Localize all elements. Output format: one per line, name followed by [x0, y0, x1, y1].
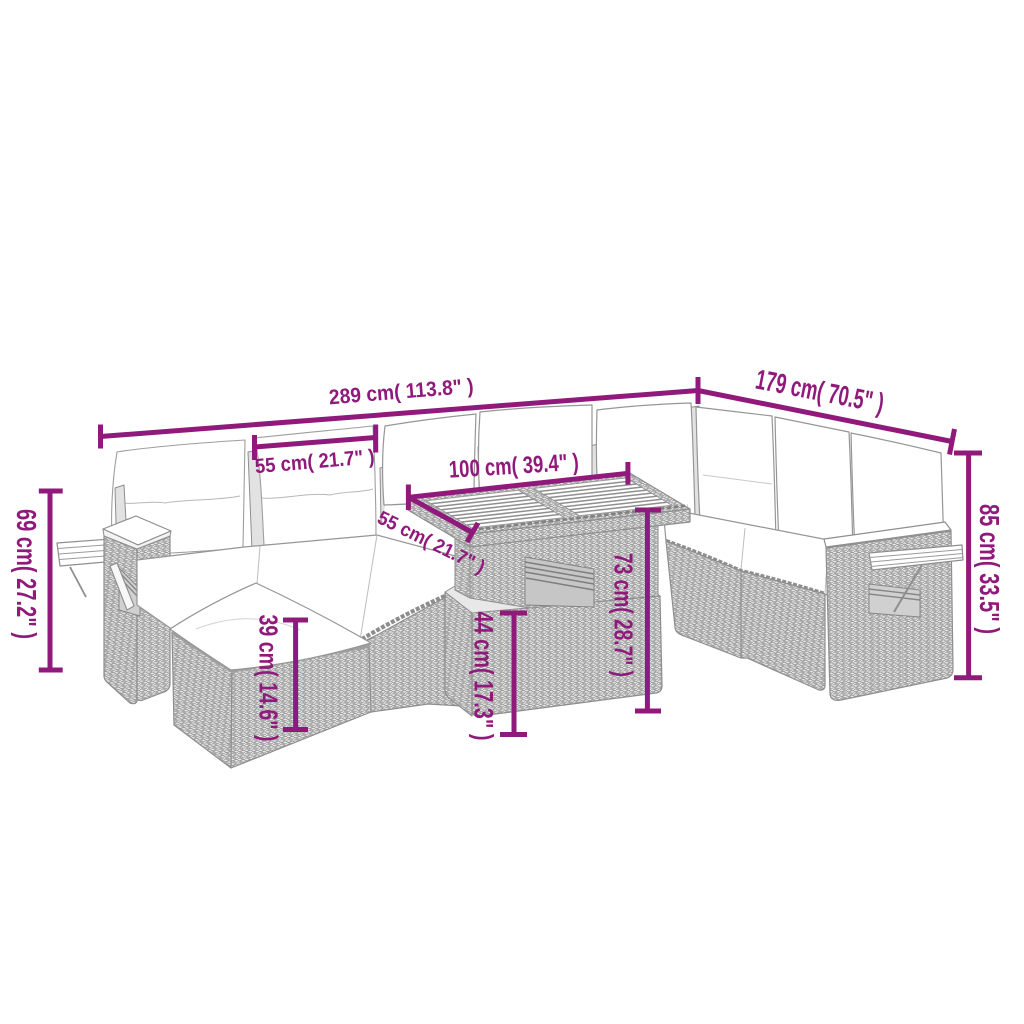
svg-text:69 cm( 27.2" ): 69 cm( 27.2" ): [11, 509, 42, 639]
svg-text:73 cm( 28.7" ): 73 cm( 28.7" ): [609, 553, 639, 677]
svg-text:39 cm( 14.6" ): 39 cm( 14.6" ): [254, 615, 284, 742]
svg-text:85 cm( 33.5" ): 85 cm( 33.5" ): [974, 504, 1005, 634]
svg-text:44 cm( 17.3" ): 44 cm( 17.3" ): [469, 612, 499, 741]
